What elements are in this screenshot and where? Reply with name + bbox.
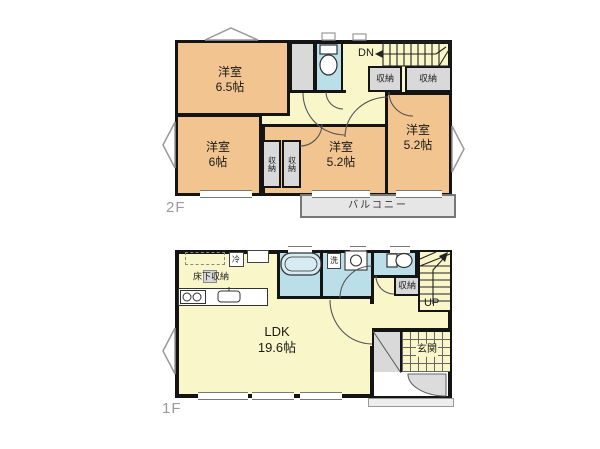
2f-wall-segment	[288, 90, 346, 93]
2f-balcony-label: バルコニー	[348, 200, 408, 213]
room-name: 洋室	[216, 65, 245, 80]
2f-window	[200, 190, 252, 198]
floor-plan: 洋室 6.5帖 洋室 6帖 洋室 5.2帖 洋室 5.2帖 収納 収納 収納 収…	[0, 0, 600, 449]
1f-underfloor-storage-label: 床下収納	[193, 271, 229, 282]
2f-bedroom-6-label: 洋室 6帖	[206, 140, 230, 170]
2f-bay-window-left	[163, 122, 175, 168]
1f-porch-step	[368, 398, 454, 407]
1f-window	[288, 246, 312, 254]
room-size: 6帖	[206, 155, 230, 170]
2f-window	[396, 190, 442, 198]
1f-counter-top-wall	[247, 250, 269, 263]
2f-floor-label: 2F	[166, 199, 186, 216]
2f-bedroom-5-2-right-label: 洋室 5.2帖	[404, 123, 433, 153]
2f-closet-mid-right-label: 収納	[287, 156, 298, 172]
2f-stairs-down-label: DN	[358, 47, 374, 59]
1f-entrance-porch	[374, 372, 448, 396]
2f-bedroom-6-5-label: 洋室 6.5帖	[216, 65, 245, 95]
room-name: 洋室	[206, 140, 230, 155]
2f-closet-mid-left-label: 収納	[267, 156, 278, 172]
room-name: LDK	[258, 324, 296, 340]
1f-window	[198, 392, 248, 400]
room-size: 6.5帖	[216, 80, 245, 95]
1f-stairs-up-label: UP	[424, 297, 439, 309]
1f-window	[300, 392, 342, 400]
1f-floor-label: 1F	[162, 400, 182, 417]
1f-window	[252, 392, 294, 400]
1f-entrance-label: 玄関	[416, 344, 438, 357]
room-name: 洋室	[327, 140, 356, 155]
room-size: 5.2帖	[327, 155, 356, 170]
1f-kitchen-stove	[180, 290, 206, 304]
1f-bathroom	[277, 250, 323, 299]
1f-wall-segment	[370, 296, 374, 304]
2f-closet-top-right-label: 収納	[419, 73, 437, 84]
1f-laundry-label: 洗	[330, 256, 338, 266]
1f-shoe-cabinet	[372, 330, 402, 374]
room-name: 洋室	[404, 123, 433, 138]
2f-bay-window-right	[452, 126, 464, 172]
2f-walkin-closet	[290, 42, 315, 92]
2f-toilet-room	[315, 42, 343, 92]
1f-range-hood-outline	[185, 252, 225, 265]
1f-closet-label: 収納	[398, 280, 416, 291]
1f-refrigerator-label: 冷	[232, 255, 240, 265]
1f-window	[390, 246, 410, 254]
1f-bay-window-left	[163, 328, 175, 374]
1f-ldk-label: LDK 19.6帖	[258, 324, 296, 357]
2f-bay-window-top	[205, 28, 258, 40]
2f-closet-top-left-label: 収納	[376, 73, 394, 84]
2f-bedroom-5-2-center-label: 洋室 5.2帖	[327, 140, 356, 170]
1f-toilet-room	[371, 250, 418, 278]
room-size: 19.6帖	[258, 340, 296, 356]
2f-window	[312, 190, 370, 198]
1f-window	[350, 246, 366, 254]
room-size: 5.2帖	[404, 138, 433, 153]
